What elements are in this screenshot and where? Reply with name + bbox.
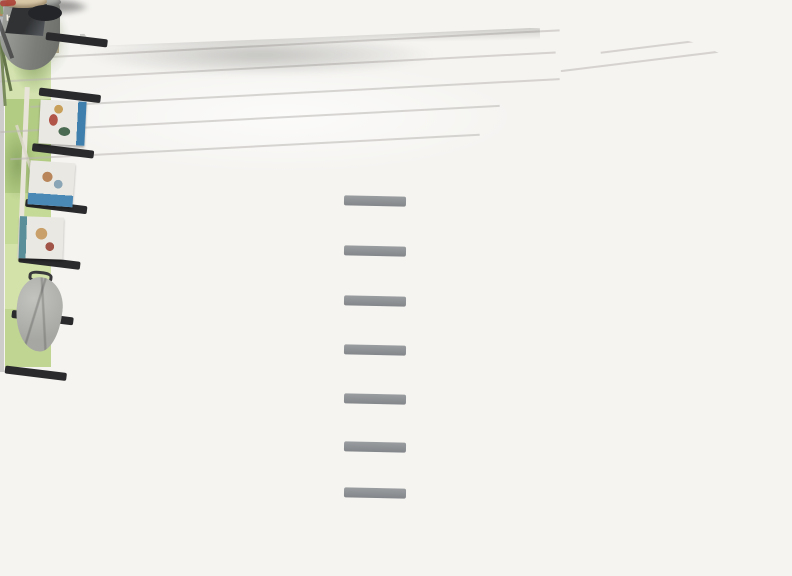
bed-ladder-rung — [344, 295, 406, 306]
room-photo: hava — [0, 0, 792, 576]
ladder-rail — [103, 9, 112, 10]
shadow-rail — [102, 9, 111, 10]
plank-seam — [561, 42, 792, 72]
under-bed-floor-shadow — [88, 34, 432, 76]
magazine-1 — [38, 99, 86, 145]
magazine-3 — [19, 216, 64, 260]
bed-ladder-rung — [344, 487, 406, 498]
ladder-rung — [4, 365, 67, 380]
bed-ladder-rung — [344, 344, 406, 355]
bed-ladder-rung — [344, 393, 406, 404]
stool-logo — [0, 0, 16, 7]
magazine-2 — [27, 160, 75, 207]
plank-seam — [601, 28, 792, 53]
stool-hub — [28, 5, 62, 21]
bed-ladder-rung — [344, 195, 406, 206]
bed-ladder-rung — [344, 441, 406, 452]
bed-ladder-rung — [344, 245, 406, 256]
